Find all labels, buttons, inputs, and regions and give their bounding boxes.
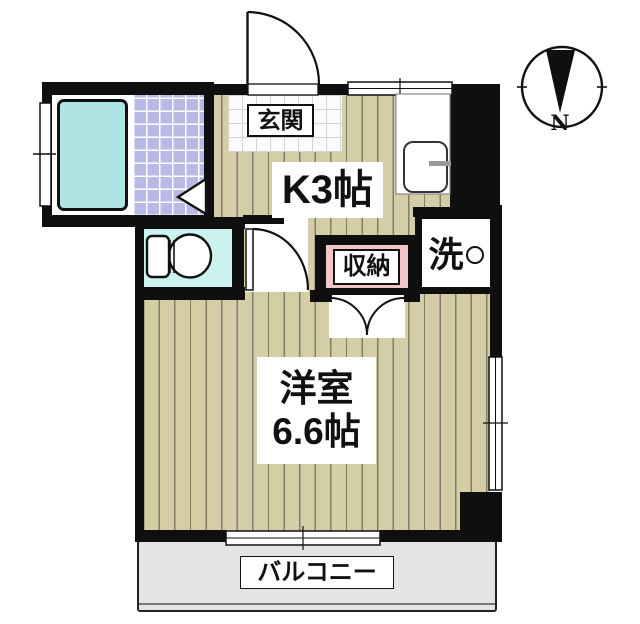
closet-label-text: 収納 [343, 253, 391, 281]
entrance-label-text: 玄関 [258, 107, 304, 133]
toilet-tank [147, 236, 169, 277]
entrance-door-opening [248, 84, 318, 95]
sink-faucet [429, 161, 451, 166]
closet-door-arc-right [367, 298, 404, 335]
western-room-label-line2: 6.6帖 [272, 411, 360, 454]
floor-plan: N 玄関 K3帖 収納 洗 洋室 6.6帖 バルコニー [0, 0, 640, 624]
balcony-label: バルコニー [240, 556, 394, 589]
bath-folding-door [178, 179, 206, 214]
compass-north-label: N [550, 110, 569, 135]
entrance-door-swing-arc [248, 12, 320, 84]
washer-faucet-circle [467, 247, 483, 263]
kitchen-sink [404, 142, 447, 192]
kitchen-label: K3帖 [272, 162, 383, 218]
kitchen-label-text: K3帖 [282, 167, 373, 213]
balcony-label-text: バルコニー [257, 559, 377, 587]
laundry-label-text: 洗 [428, 236, 463, 276]
western-room-label: 洋室 6.6帖 [257, 357, 376, 464]
laundry-label: 洗 [423, 231, 469, 281]
kitchen-door-swing-arc [253, 229, 308, 290]
closet-door-arc-left [330, 298, 367, 335]
western-room-label-line1: 洋室 [280, 368, 354, 411]
entrance-label: 玄関 [247, 104, 314, 137]
linework-layer: N [0, 0, 640, 624]
closet-label: 収納 [333, 249, 400, 285]
toilet-bowl [169, 235, 211, 278]
kitchen-door-leaf [246, 229, 253, 290]
